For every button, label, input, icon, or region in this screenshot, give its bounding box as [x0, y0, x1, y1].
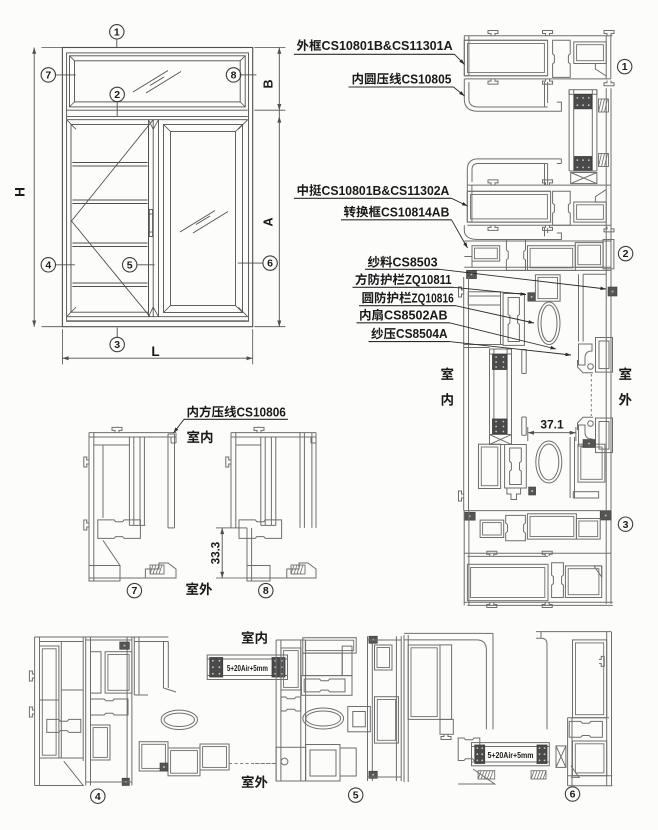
- svg-text:CS10801B&CS11301A: CS10801B&CS11301A: [322, 39, 453, 53]
- svg-text:H: H: [13, 187, 28, 197]
- svg-text:2: 2: [114, 89, 120, 101]
- svg-text:8: 8: [263, 585, 269, 597]
- svg-text:37.1: 37.1: [540, 418, 564, 432]
- svg-text:CS10814AB: CS10814AB: [381, 205, 449, 219]
- svg-text:CS8504A: CS8504A: [396, 327, 448, 341]
- svg-text:1: 1: [114, 26, 120, 38]
- svg-text:CS10801B&CS11302A: CS10801B&CS11302A: [322, 184, 450, 198]
- svg-text:7: 7: [131, 585, 137, 597]
- svg-text:6: 6: [570, 789, 576, 801]
- svg-text:7: 7: [45, 70, 51, 82]
- svg-text:5+20Air+5mm: 5+20Air+5mm: [227, 663, 268, 673]
- svg-text:3: 3: [623, 519, 629, 531]
- svg-text:L: L: [151, 344, 159, 359]
- svg-text:CS10805: CS10805: [402, 72, 452, 86]
- svg-text:3: 3: [114, 339, 120, 351]
- svg-text:CS8503: CS8503: [393, 256, 438, 270]
- svg-text:A: A: [262, 217, 276, 226]
- svg-text:5: 5: [127, 259, 133, 271]
- svg-text:5: 5: [353, 790, 359, 802]
- svg-text:CS8502AB: CS8502AB: [384, 309, 448, 323]
- svg-text:CS10806: CS10806: [237, 405, 286, 419]
- svg-text:1: 1: [622, 61, 628, 73]
- svg-text:2: 2: [623, 248, 629, 260]
- svg-text:5+20Air+5mm: 5+20Air+5mm: [488, 750, 534, 760]
- svg-text:8: 8: [231, 70, 237, 82]
- svg-text:33.3: 33.3: [211, 542, 223, 564]
- svg-text:B: B: [262, 79, 276, 88]
- svg-text:4: 4: [95, 791, 101, 803]
- svg-text:ZQ10811: ZQ10811: [405, 273, 452, 287]
- svg-text:4: 4: [45, 259, 51, 271]
- svg-text:6: 6: [267, 258, 273, 270]
- svg-text:ZQ10816: ZQ10816: [412, 291, 454, 305]
